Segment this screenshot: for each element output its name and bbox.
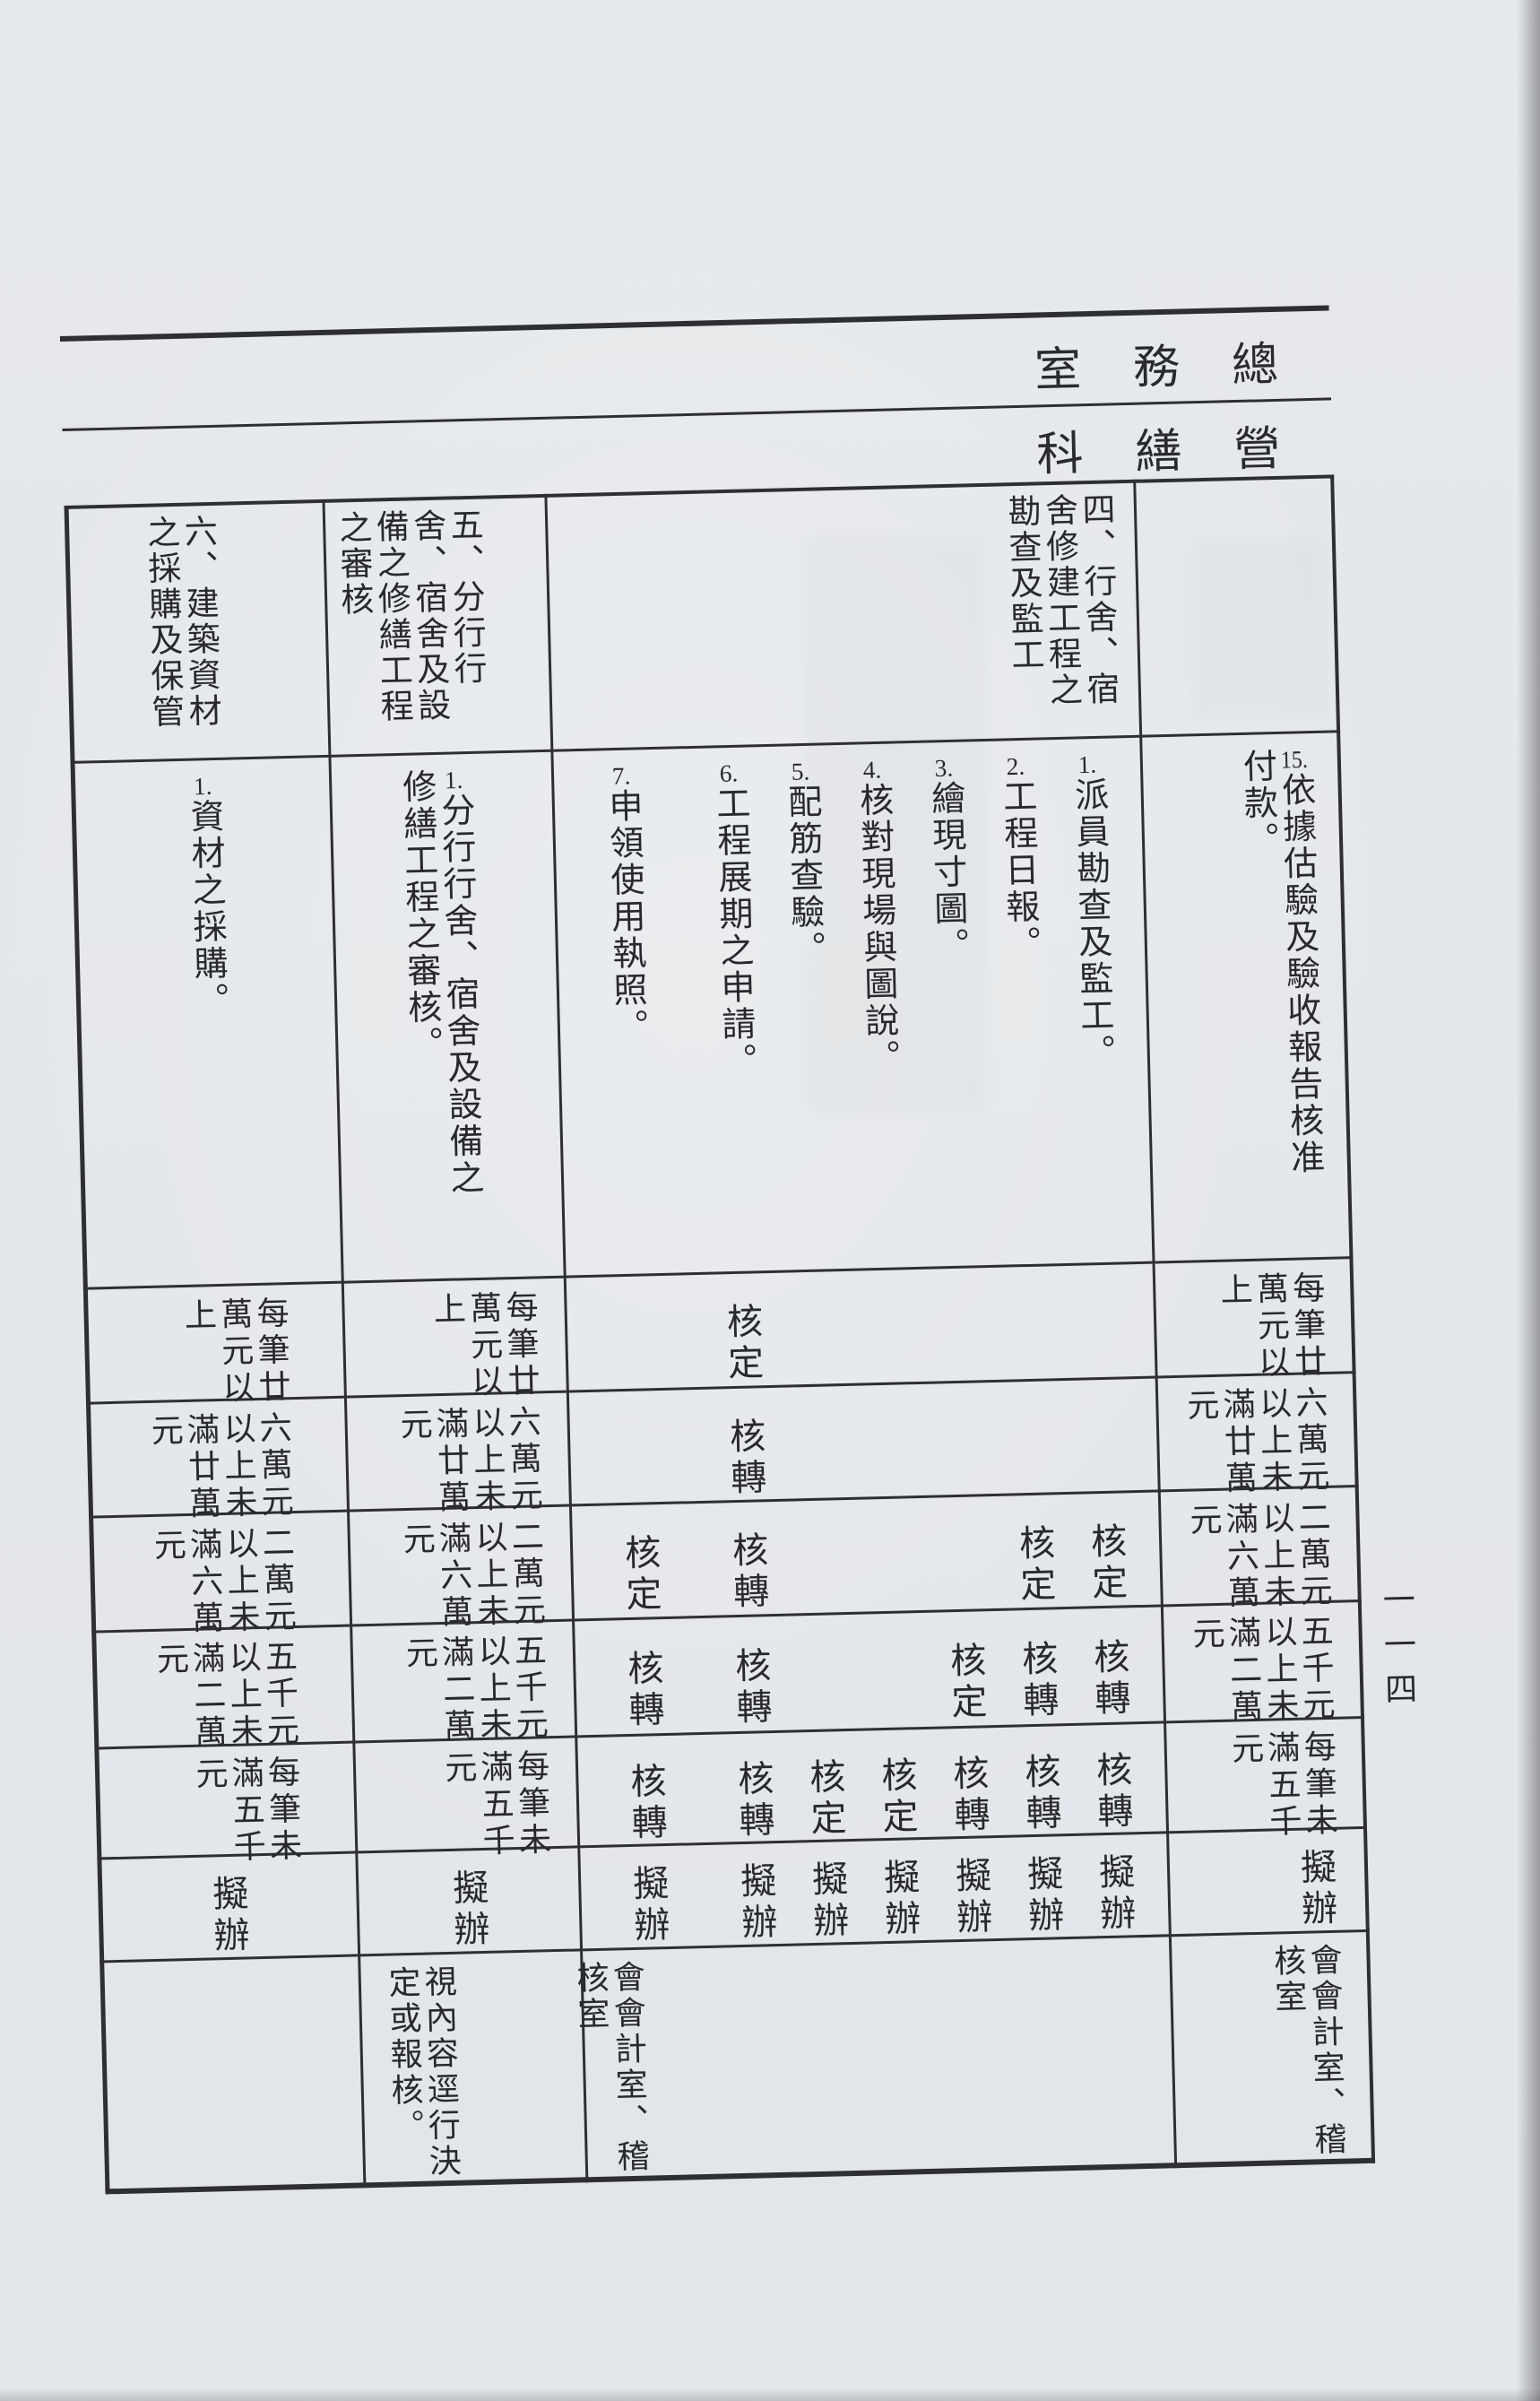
draft-task5: 擬辦 [807, 1859, 848, 1943]
scanned-document-page: 室務總 科繕營 六、建築資材之採購及保管 五、分行行舍、宿舍及設備之修繕工程之審… [0, 0, 1540, 2401]
task-text: 申領使用執照。 [602, 788, 646, 1046]
task-text: 工程展期之申請。 [710, 785, 755, 1080]
item5-amount-band4: 五千元以上未滿二萬元 [396, 1633, 548, 1747]
task-number: 5. [787, 759, 815, 784]
divider-item4-cont [1133, 480, 1177, 2169]
draft-task6: 擬辦 [735, 1861, 776, 1945]
mark-band3-task1: 核定 [1086, 1521, 1127, 1608]
task-number: 6. [715, 761, 743, 786]
item6-title: 六、建築資材之採購及保管 [136, 514, 221, 759]
item5-title: 五、分行行舍、宿舍及設備之修繕工程之審核 [370, 507, 488, 754]
item4-task-1: 1.派員勘查及監工。 [1067, 752, 1119, 1255]
task-text: 繪現寸圖。 [925, 780, 967, 965]
item6-task-1: 1.資材之採購。 [182, 774, 234, 1277]
item4-remark: 會會計室、稽核室 [567, 1960, 649, 2181]
draft-task2: 擬辦 [1022, 1854, 1063, 1937]
page-number: 一一四 [1378, 1582, 1417, 1745]
rule-remarks-top [99, 1929, 1370, 1963]
item4-task-6: 6.工程展期之申請。 [708, 760, 760, 1263]
task-number: 1. [1074, 752, 1102, 777]
mark-band3-task7: 核定 [619, 1533, 661, 1620]
table-border-left [65, 506, 110, 2195]
mark-band4-task1: 核轉 [1088, 1637, 1129, 1724]
item6-amount-band3: 二萬元以上未滿六萬元 [144, 1525, 296, 1640]
mark-band3-task6: 核轉 [727, 1530, 768, 1617]
task-text: 派員勘查及監工。 [1068, 776, 1113, 1071]
cont-amount-band1: 每筆廿萬元以上 [1175, 1270, 1327, 1385]
task-number: 1. [440, 767, 468, 793]
task-number: 1. [189, 774, 217, 799]
section-name: 科繕營 [1035, 409, 1333, 483]
item5-amount-band5: 每筆未滿五千元 [400, 1748, 551, 1863]
item5-amount-band1: 每筆廿萬元以上 [388, 1289, 540, 1404]
item4-task-7: 7.申領使用執照。 [601, 763, 653, 1266]
mark-band5-task5: 核定 [804, 1757, 845, 1844]
item4-task-5: 5.配筋查驗。 [780, 759, 832, 1262]
item5-remark: 視內容逕行決定或報核。 [378, 1964, 461, 2186]
task-text: 工程日報。 [997, 778, 1039, 963]
mark-band4-task6: 核轉 [730, 1646, 771, 1733]
rule-header-tasks [70, 730, 1340, 764]
draft-task4: 擬辦 [878, 1858, 920, 1941]
item4-task-4: 4.核對現場與圖說。 [852, 758, 904, 1261]
item6-amount-band5: 每筆未滿五千元 [151, 1755, 302, 1869]
draft-task7: 擬辦 [627, 1864, 669, 1947]
cont-amount-band2: 六萬元以上未滿廿萬元 [1178, 1385, 1329, 1500]
item4-task-2: 2.工程日報。 [995, 754, 1047, 1257]
task-number: 4. [859, 758, 887, 783]
task-text: 配筋查驗。 [782, 784, 824, 968]
item5-amount-band2: 六萬元以上未滿廿萬元 [391, 1404, 542, 1519]
item5-amount-band3: 二萬元以上未滿六萬元 [394, 1519, 545, 1634]
mark-band5-task4: 核定 [876, 1755, 917, 1842]
mark-band5-task7: 核轉 [625, 1762, 666, 1849]
task-text: 依據估驗及驗收報告核准付款。 [1237, 748, 1323, 1176]
mark-band2-task6: 核轉 [724, 1417, 766, 1504]
mark-band4-task7: 核轉 [622, 1649, 663, 1736]
mark-band4-task2: 核轉 [1017, 1639, 1058, 1726]
draft-cont: 擬辦 [1295, 1848, 1337, 1931]
table-border-top [65, 474, 1335, 509]
mark-band4-task3: 核定 [945, 1641, 986, 1728]
table-border-right [1330, 474, 1375, 2163]
item6-amount-band2: 六萬元以上未滿廿萬元 [142, 1410, 293, 1525]
table-border-bottom [105, 2158, 1375, 2195]
mark-band5-task2: 核轉 [1019, 1752, 1060, 1839]
cont-amount-band5: 每筆未滿五千元 [1186, 1729, 1337, 1844]
divider-item6-item5 [322, 499, 366, 2189]
item4-title: 四、行舍、宿舍修建工程之勘查及監工 [1004, 491, 1120, 738]
draft-item6: 擬辦 [207, 1874, 248, 1957]
task-number: 15. [1281, 747, 1309, 772]
cont-remark: 會會計室、稽核室 [1264, 1943, 1346, 2164]
scan-edge-shadow-bottom [0, 2388, 1540, 2401]
divider-item5-item4 [544, 494, 588, 2183]
cont-amount-band3: 二萬元以上未滿六萬元 [1181, 1500, 1332, 1615]
mark-band5-task6: 核轉 [732, 1759, 774, 1846]
task-number: 7. [608, 764, 636, 789]
draft-task3: 擬辦 [950, 1856, 991, 1939]
cont-task-15: 15.依據估驗及驗收報告核准付款。 [1231, 747, 1324, 1201]
mark-band3-task2: 核定 [1014, 1523, 1055, 1610]
task-text: 資材之採購。 [185, 798, 228, 1019]
draft-task1: 擬辦 [1094, 1852, 1135, 1936]
scan-edge-shadow-right [1517, 0, 1540, 2401]
task-number: 2. [1002, 754, 1030, 779]
mark-band5-task3: 核轉 [947, 1754, 989, 1841]
item6-amount-band1: 每筆廿萬元以上 [139, 1296, 290, 1410]
rule-band1-top [83, 1256, 1354, 1290]
item5-task-1: 1.分行行舍、宿舍及設備之修繕工程之審核。 [390, 767, 483, 1213]
draft-item5: 擬辦 [447, 1868, 489, 1952]
page-ink-layer: 室務總 科繕營 六、建築資材之採購及保管 五、分行行舍、宿舍及設備之修繕工程之審… [0, 0, 1540, 2401]
item4-task-3: 3.繪現寸圖。 [923, 756, 975, 1259]
task-number: 3. [930, 756, 958, 781]
item6-amount-band4: 五千元以上未滿二萬元 [148, 1639, 299, 1754]
mark-band5-task1: 核轉 [1091, 1750, 1132, 1837]
office-name: 室務總 [1034, 325, 1331, 399]
mark-band1-task6: 核定 [721, 1302, 762, 1389]
cont-amount-band4: 五千元以上未滿二萬元 [1183, 1614, 1335, 1729]
task-text: 核對現場與圖說。 [853, 782, 898, 1077]
task-text: 分行行舍、宿舍及設備之修繕工程之審核。 [396, 768, 482, 1197]
